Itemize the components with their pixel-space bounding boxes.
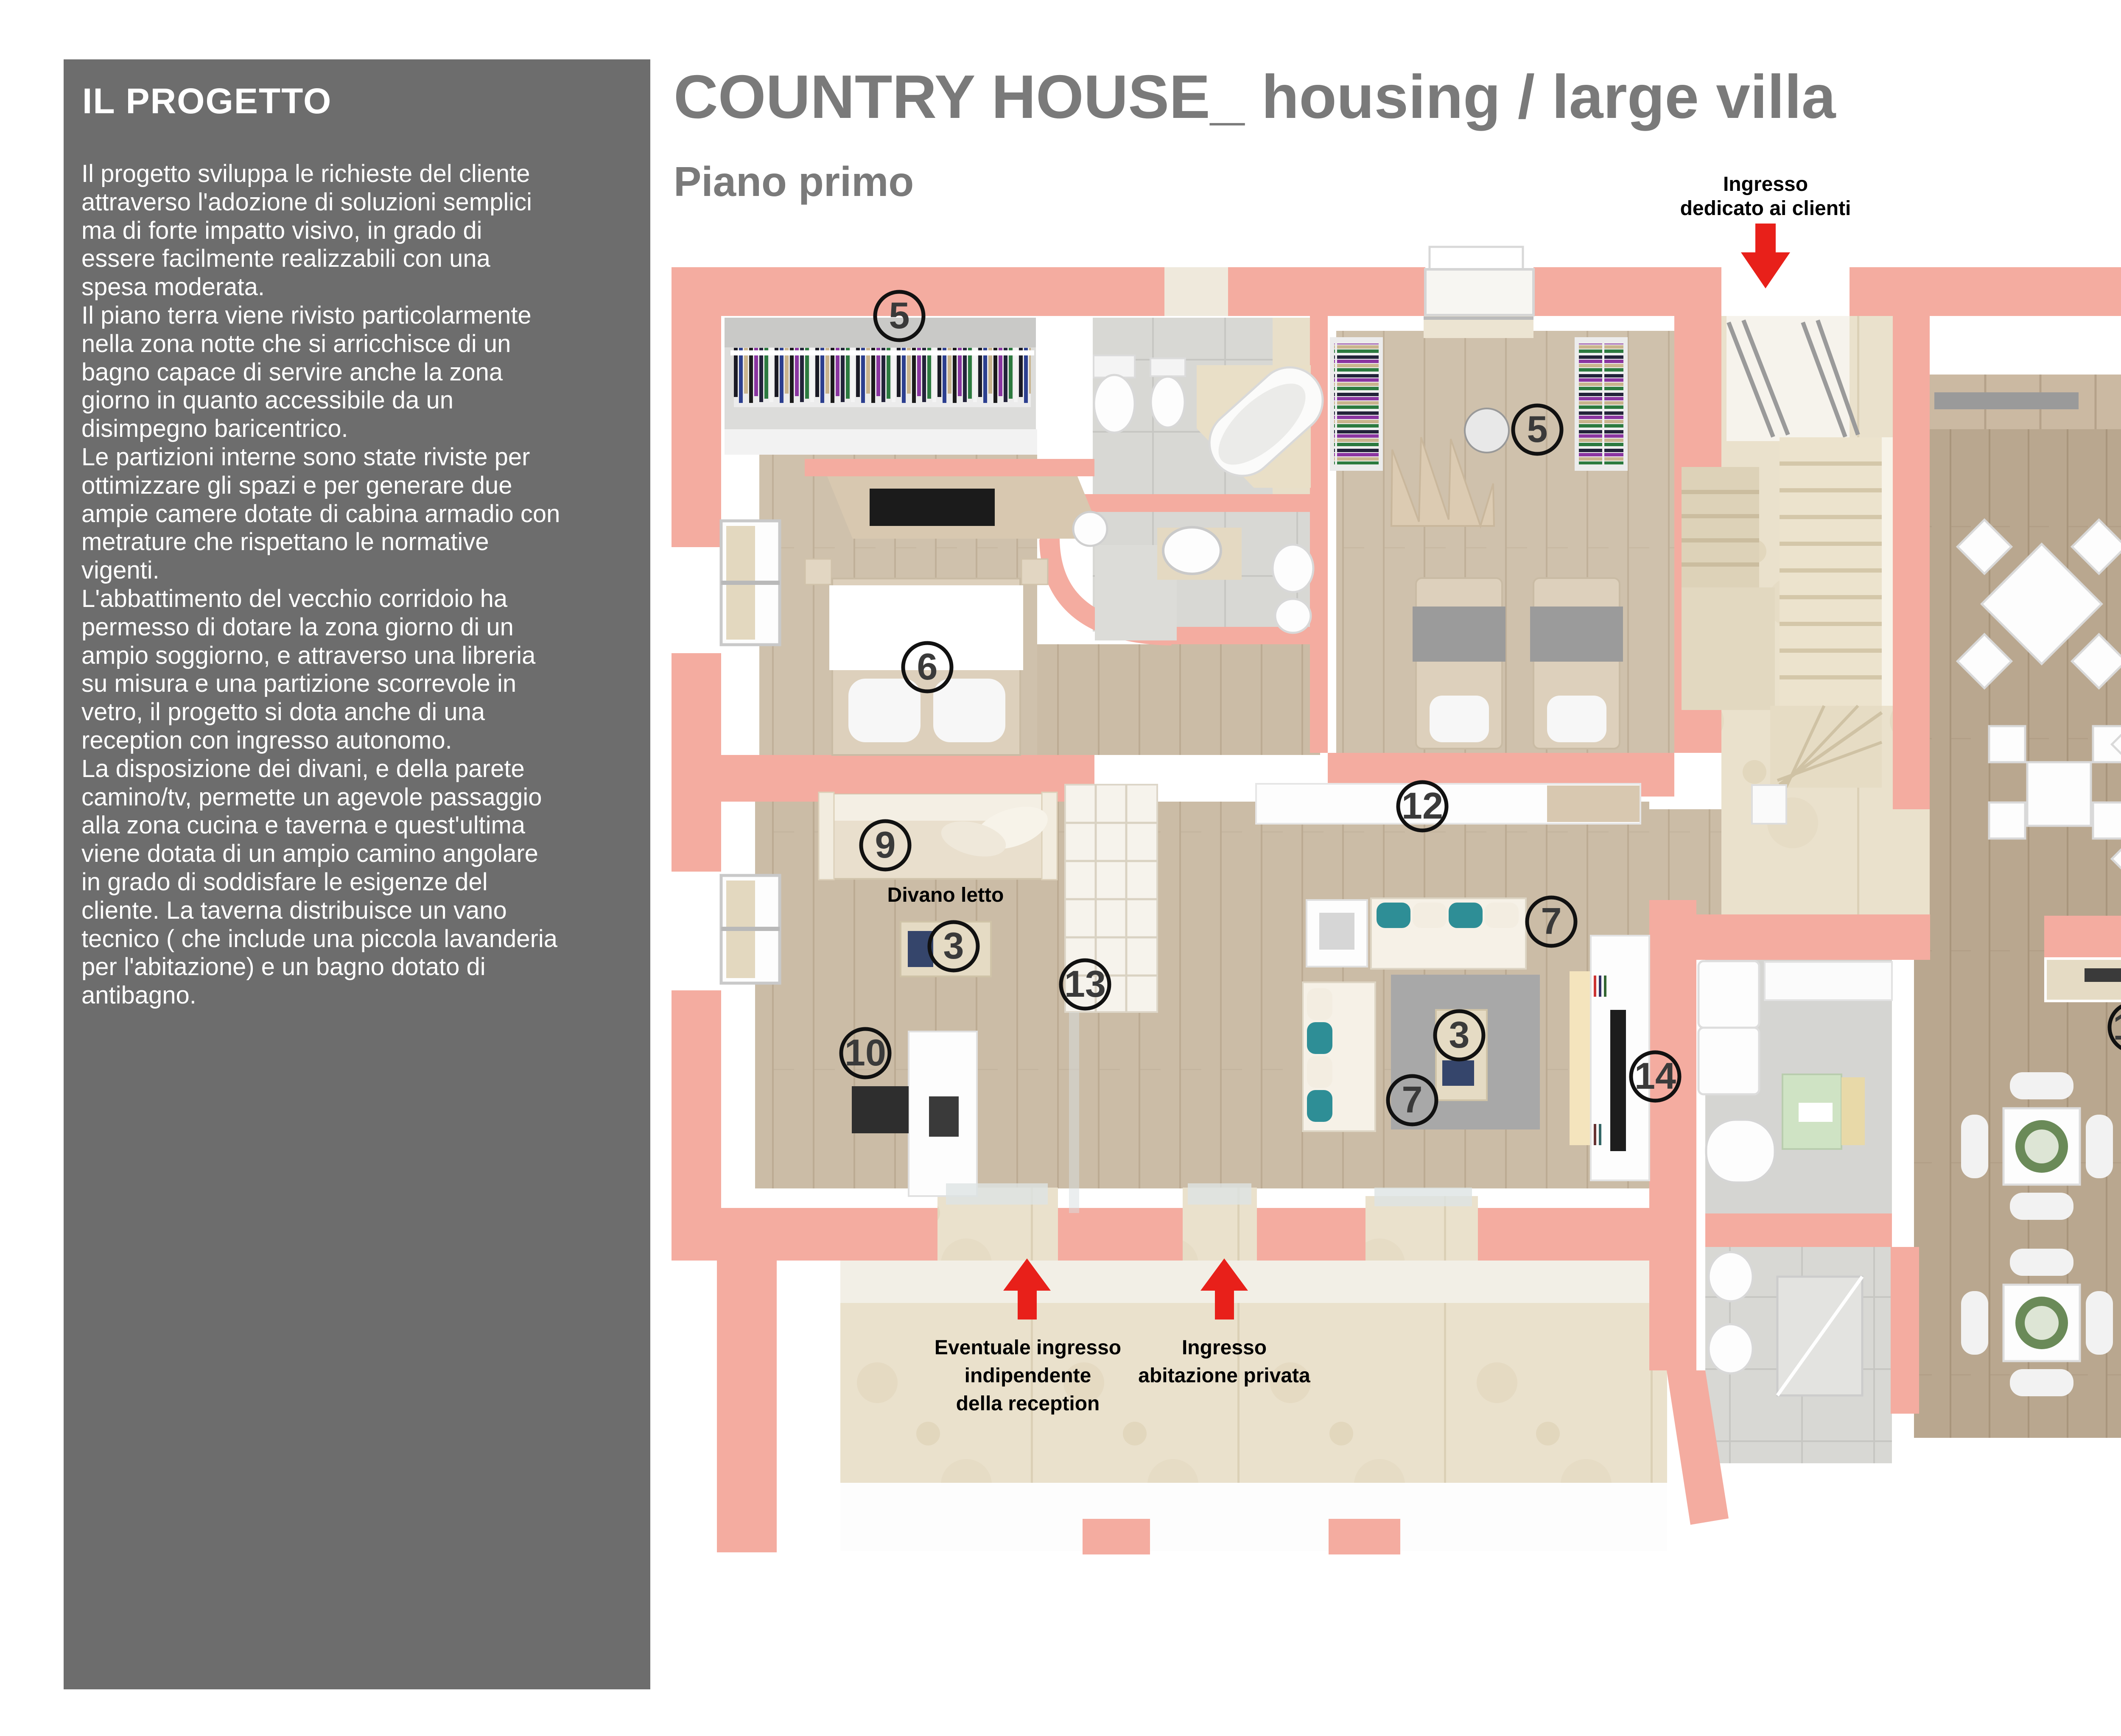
svg-text:18: 18 [2113,1006,2121,1048]
svg-text:10: 10 [845,1032,886,1073]
svg-text:13: 13 [1064,963,1106,1005]
svg-text:7: 7 [1541,900,1562,942]
svg-text:Ingresso: Ingresso [1723,173,1808,196]
svg-text:abitazione privata: abitazione privata [1138,1364,1310,1387]
svg-text:indipendente: indipendente [965,1364,1091,1387]
svg-text:3: 3 [943,925,964,967]
svg-text:3: 3 [1449,1014,1470,1056]
svg-text:Ingresso: Ingresso [1182,1336,1267,1359]
svg-text:dedicato ai clienti: dedicato ai clienti [1680,197,1851,220]
svg-text:14: 14 [1634,1055,1676,1097]
svg-text:9: 9 [875,824,896,866]
svg-text:5: 5 [1527,408,1548,450]
svg-text:5: 5 [889,294,910,336]
svg-text:Eventuale ingresso: Eventuale ingresso [935,1336,1121,1359]
svg-text:12: 12 [1402,785,1443,827]
svg-text:6: 6 [917,646,938,688]
svg-text:della reception: della reception [956,1392,1100,1415]
svg-text:Divano letto: Divano letto [887,884,1004,906]
svg-text:7: 7 [1402,1079,1423,1121]
